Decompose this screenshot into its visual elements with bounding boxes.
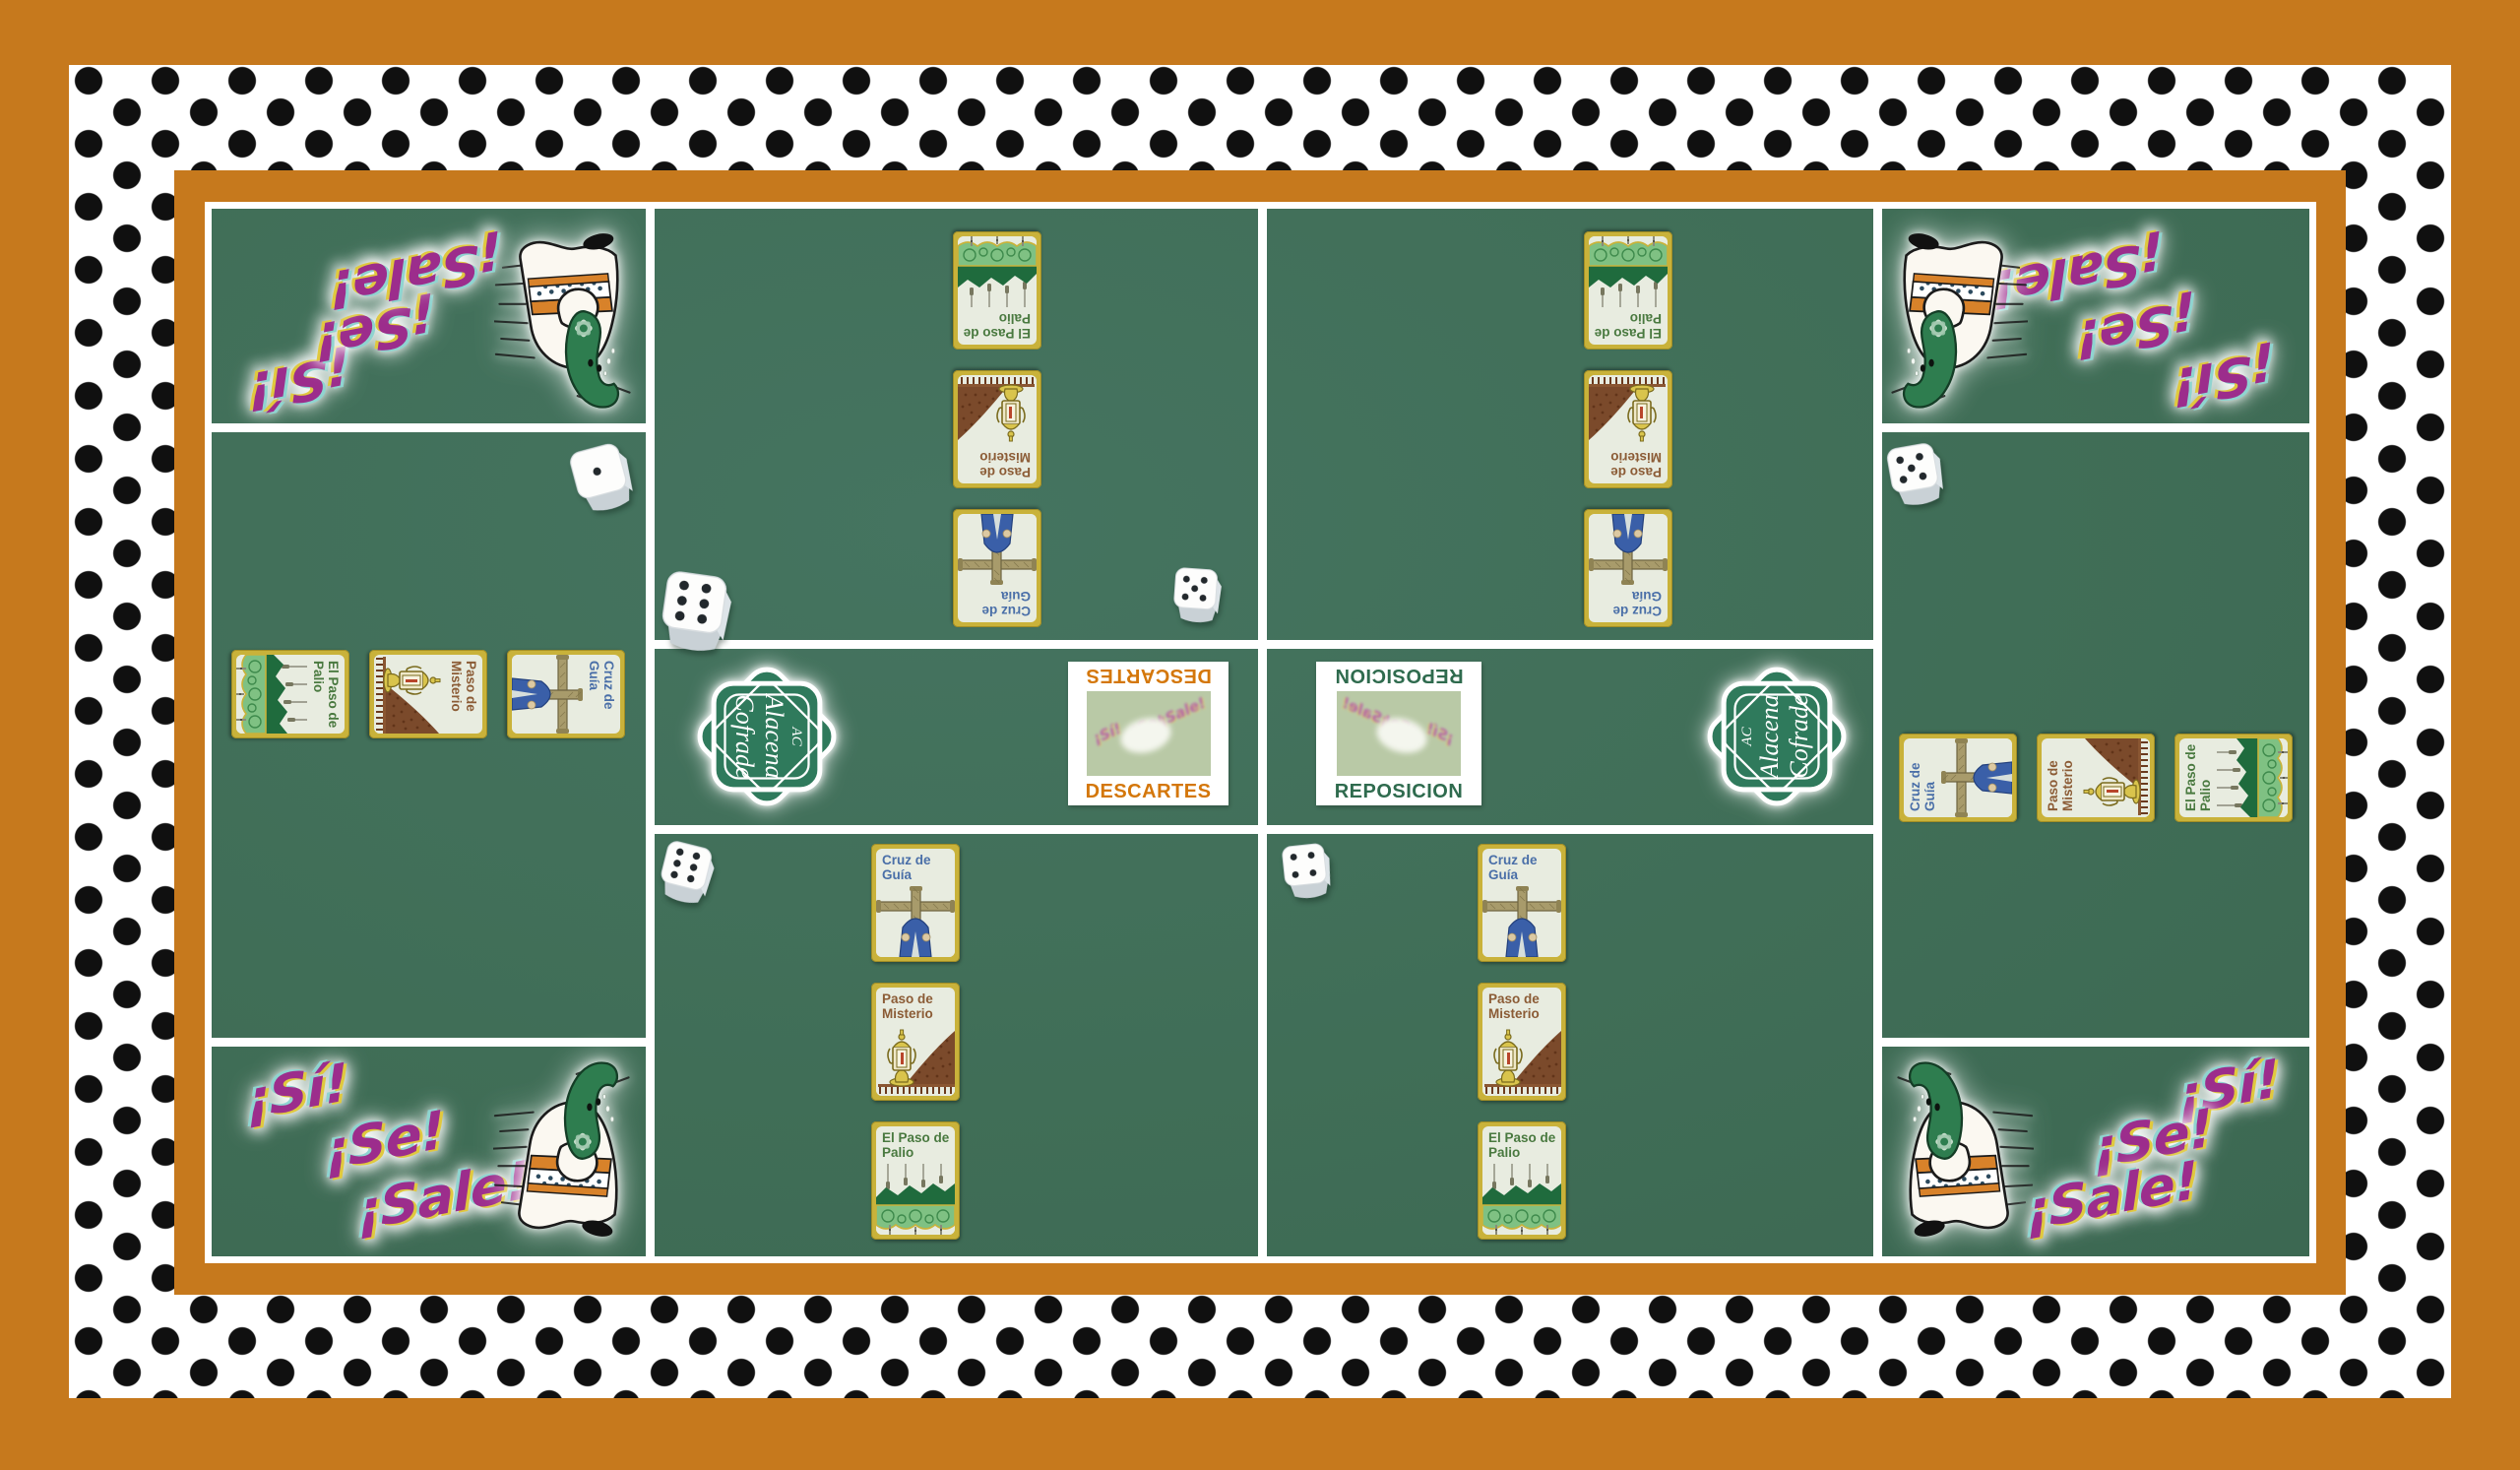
card-cruz-de-guia[interactable]: Cruz de Guía xyxy=(1584,509,1672,627)
divider-bottom-left-corner xyxy=(212,1038,655,1047)
alacena-cofrade-logo-left: AC Alacena Cofrade xyxy=(683,653,850,820)
brand-name-line2: Cofrade xyxy=(730,694,760,778)
brand-name-line1: Alacena xyxy=(760,694,789,778)
card-el-paso-de-palio[interactable]: El Paso de Palio xyxy=(871,1121,960,1240)
die-3[interactable] xyxy=(1170,565,1226,630)
card-cruz-de-guia[interactable]: Cruz de Guía xyxy=(1478,844,1566,962)
lantern-icon xyxy=(1589,375,1668,446)
die-5[interactable] xyxy=(653,837,723,915)
card-back: ¡Sí! ¡Se! ¡Sale! xyxy=(1087,691,1211,776)
card-cruz-de-guia[interactable]: Cruz de Guía xyxy=(953,509,1041,627)
card-cruz-de-guia[interactable]: Cruz de Guía xyxy=(1899,734,2017,822)
nazareno-character-icon xyxy=(494,229,642,412)
lantern-icon xyxy=(958,375,1037,446)
palio-canopy-icon xyxy=(2217,738,2288,817)
palio-canopy-icon xyxy=(1589,236,1668,307)
card-paso-de-misterio[interactable]: Paso de Misterio xyxy=(2037,734,2155,822)
palio-canopy-icon xyxy=(236,655,307,734)
card-el-paso-de-palio[interactable]: El Paso de Palio xyxy=(1478,1121,1566,1240)
nazareno-character-icon xyxy=(493,1058,641,1241)
game-board: ¡Sí! ¡Se! ¡Sale! ¡Sí! ¡Se! ¡Sale! ¡Sí! ¡… xyxy=(212,209,2309,1256)
descartes-label-inverted: DESCARTES xyxy=(1086,666,1212,685)
card-el-paso-de-palio[interactable]: El Paso de Palio xyxy=(1584,231,1672,350)
reposicion-zone[interactable]: REPOSICION ¡Sí! ¡Se! ¡Sale! REPOSICION xyxy=(1316,662,1481,805)
corner-top-right: ¡Sí! ¡Se! ¡Sale! xyxy=(1882,209,2309,423)
die-2[interactable] xyxy=(655,567,738,663)
lantern-icon xyxy=(1482,1025,1561,1096)
divider-left-vertical xyxy=(646,209,655,1256)
card-el-paso-de-palio[interactable]: El Paso de Palio xyxy=(231,650,349,738)
card-el-paso-de-palio[interactable]: El Paso de Palio xyxy=(2174,734,2293,822)
brand-monogram: AC xyxy=(788,727,803,745)
guiding-cross-icon xyxy=(1941,738,2012,817)
reposicion-label: REPOSICION xyxy=(1335,782,1464,801)
guiding-cross-icon xyxy=(876,886,955,957)
descartes-zone[interactable]: DESCARTES ¡Sí! ¡Se! ¡Sale! DESCARTES xyxy=(1068,662,1228,805)
descartes-label: DESCARTES xyxy=(1086,782,1212,801)
card-cruz-de-guia[interactable]: Cruz de Guía xyxy=(507,650,625,738)
corner-bottom-right: ¡Sí! ¡Se! ¡Sale! xyxy=(1882,1047,2309,1256)
card-paso-de-misterio[interactable]: Paso de Misterio xyxy=(1478,983,1566,1101)
game-mat: ¡Sí! ¡Se! ¡Sale! ¡Sí! ¡Se! ¡Sale! ¡Sí! ¡… xyxy=(0,0,2520,1470)
nazareno-character-icon xyxy=(1886,1058,2034,1241)
divider-bottom-right-corner xyxy=(1873,1038,2309,1047)
card-paso-de-misterio[interactable]: Paso de Misterio xyxy=(953,370,1041,488)
card-el-paso-de-palio[interactable]: El Paso de Palio xyxy=(953,231,1041,350)
brand-monogram: AC xyxy=(1740,727,1755,745)
card-back: ¡Sí! ¡Se! ¡Sale! xyxy=(1337,691,1461,776)
die-6[interactable] xyxy=(1280,840,1337,907)
palio-canopy-icon xyxy=(876,1164,955,1235)
shout-si: ¡Sí! xyxy=(2172,339,2277,418)
card-paso-de-misterio[interactable]: Paso de Misterio xyxy=(369,650,487,738)
divider-strip-bottom xyxy=(646,825,1882,834)
reposicion-label-inverted: REPOSICION xyxy=(1335,666,1464,685)
palio-canopy-icon xyxy=(958,236,1037,307)
brand-name-line1: Alacena xyxy=(1755,694,1785,778)
die-1[interactable] xyxy=(565,437,643,524)
guiding-cross-icon xyxy=(1482,886,1561,957)
palio-canopy-icon xyxy=(1482,1164,1561,1235)
die-4[interactable] xyxy=(1883,438,1951,516)
brand-name-line2: Cofrade xyxy=(1785,694,1814,778)
guiding-cross-icon xyxy=(512,655,583,734)
corner-bottom-left: ¡Sí! ¡Se! ¡Sale! xyxy=(212,1047,646,1256)
divider-top-right-corner xyxy=(1873,423,2309,432)
lantern-icon xyxy=(876,1025,955,1096)
lantern-icon xyxy=(374,655,445,734)
divider-top-left-corner xyxy=(212,423,655,432)
card-cruz-de-guia[interactable]: Cruz de Guía xyxy=(871,844,960,962)
nazareno-character-icon xyxy=(1880,229,2028,412)
guiding-cross-icon xyxy=(958,514,1037,585)
lantern-icon xyxy=(2079,738,2150,817)
card-paso-de-misterio[interactable]: Paso de Misterio xyxy=(1584,370,1672,488)
guiding-cross-icon xyxy=(1589,514,1668,585)
corner-top-left: ¡Sí! ¡Se! ¡Sale! xyxy=(212,209,646,423)
alacena-cofrade-logo-right: AC Alacena Cofrade xyxy=(1693,653,1860,820)
divider-center-vertical xyxy=(1258,209,1267,1256)
divider-strip-top xyxy=(646,640,1882,649)
card-paso-de-misterio[interactable]: Paso de Misterio xyxy=(871,983,960,1101)
